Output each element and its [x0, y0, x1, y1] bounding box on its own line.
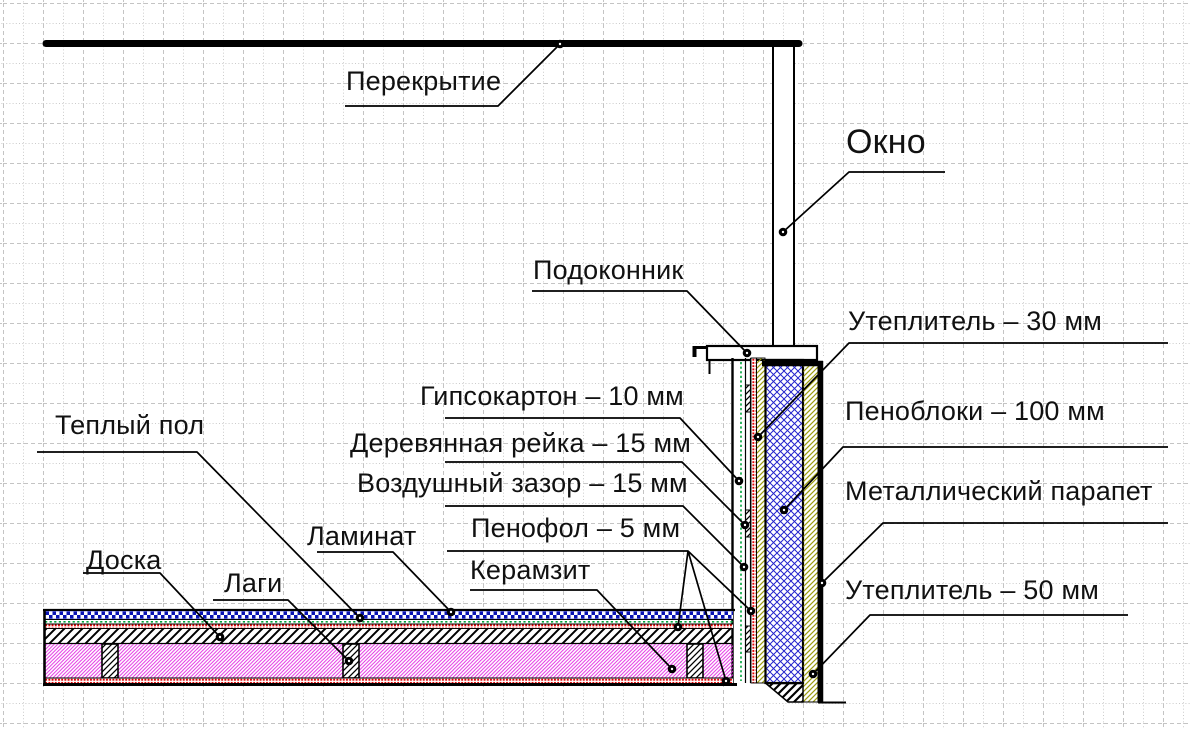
label-penofol: Пенофол – 5 мм [471, 514, 680, 542]
label-perekrytie: Перекрытие [346, 67, 501, 95]
label-doska: Доска [86, 546, 162, 574]
label-uteplitel-50: Утеплитель – 50 мм [845, 576, 1099, 604]
window-frame [773, 46, 794, 346]
label-teply-pol: Теплый пол [55, 411, 204, 439]
diagram-canvas [0, 0, 1190, 729]
floor-laminate [45, 611, 733, 619]
floor-expanded-clay [45, 644, 733, 678]
label-zazor: Воздушный зазор – 15 мм [357, 469, 688, 497]
label-parapet: Металлический парапет [845, 477, 1153, 505]
diagram-page: Перекрытие Окно Подоконник Утеплитель – … [0, 0, 1190, 729]
label-penobloki: Пеноблоки – 100 мм [845, 397, 1105, 425]
label-podokonnik: Подоконник [533, 256, 683, 284]
wall-batten [746, 626, 751, 652]
label-laminat: Ламинат [307, 522, 416, 550]
wall-insulation-30 [757, 358, 766, 683]
floor-board [45, 629, 733, 643]
wall-batten [746, 385, 751, 412]
wall-foam-blocks [766, 360, 804, 683]
label-okno: Окно [846, 128, 926, 156]
wall-penofol-strip [751, 358, 757, 683]
floor-penofol-bottom [45, 679, 733, 684]
label-reika: Деревянная рейка – 15 мм [350, 429, 691, 457]
label-gipsokarton: Гипсокартон – 10 мм [420, 382, 684, 410]
wall-insulation-50 [803, 362, 818, 702]
label-uteplitel-30: Утеплитель – 30 мм [848, 307, 1102, 335]
label-lagi: Лаги [224, 569, 282, 597]
label-keramzit: Керамзит [470, 556, 590, 584]
